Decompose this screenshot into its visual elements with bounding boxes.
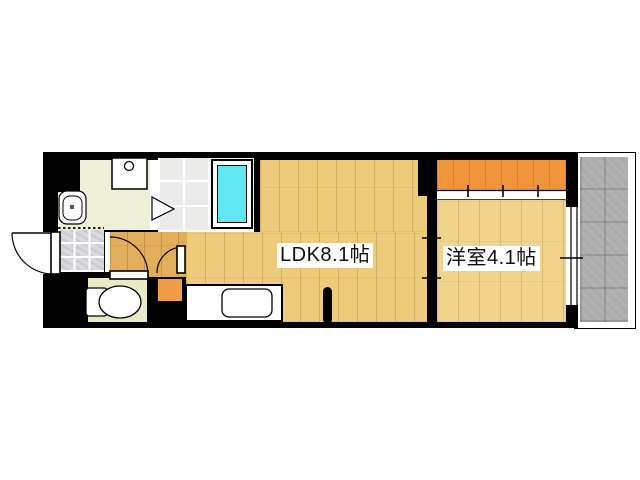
wall-segment: [418, 160, 427, 196]
entrance-tile: [58, 230, 104, 272]
cabinet: [158, 279, 182, 301]
closet-door-track: [437, 190, 566, 200]
wall-mass-left: [53, 272, 88, 328]
balcony: [580, 157, 628, 322]
bath-door-opening: [150, 160, 158, 230]
floorplan-canvas: LDK8.1帖 洋室4.1帖: [0, 0, 640, 480]
bathtub-basin: [217, 165, 247, 223]
window-opening: [566, 207, 578, 305]
closet: [437, 160, 566, 190]
ldk-room-label: LDK8.1帖: [277, 243, 373, 268]
room-toilet: [88, 278, 147, 322]
kitchen-counter: [185, 284, 283, 322]
entrance-opening: [43, 232, 52, 274]
western-room-label: 洋室4.1帖: [443, 246, 540, 271]
wall-corner: [43, 152, 80, 192]
room-ldk: [260, 160, 427, 232]
